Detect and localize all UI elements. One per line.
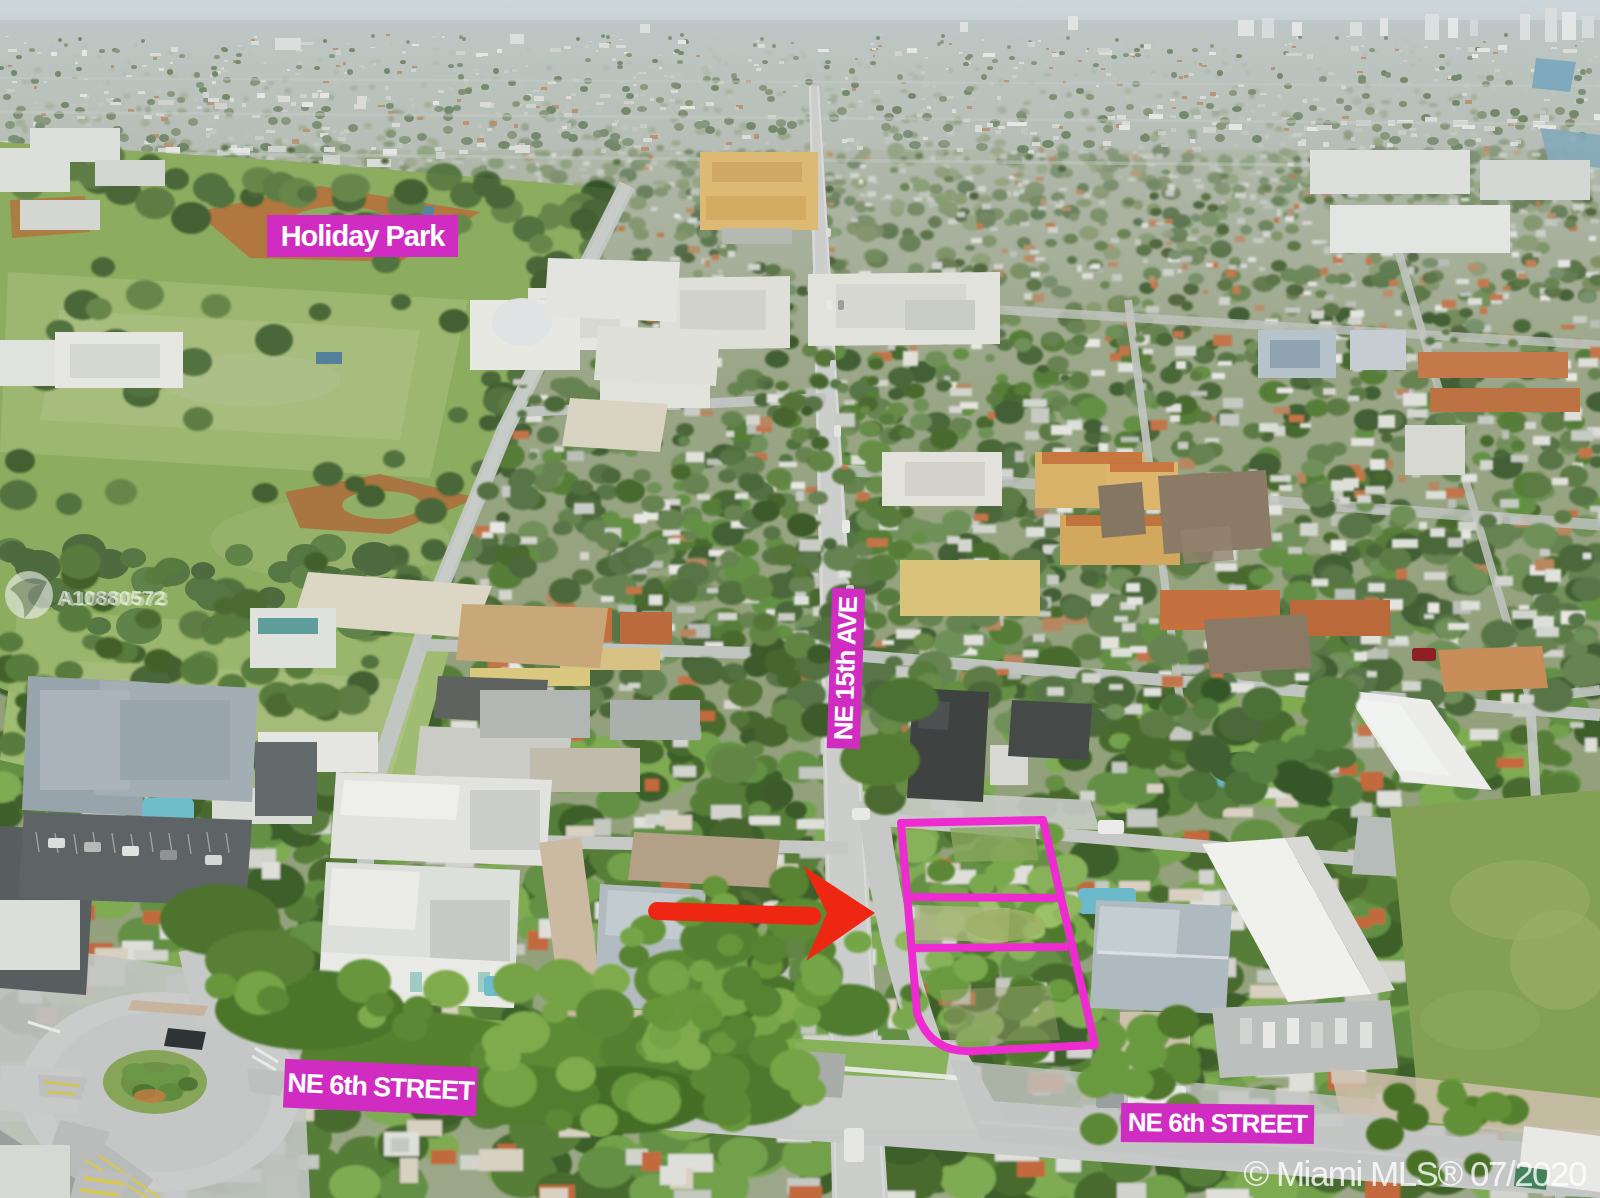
svg-text:© Miami MLS® 07/2020: © Miami MLS® 07/2020 [1243,1154,1587,1193]
svg-text:A10880573: A10880573 [60,587,169,610]
